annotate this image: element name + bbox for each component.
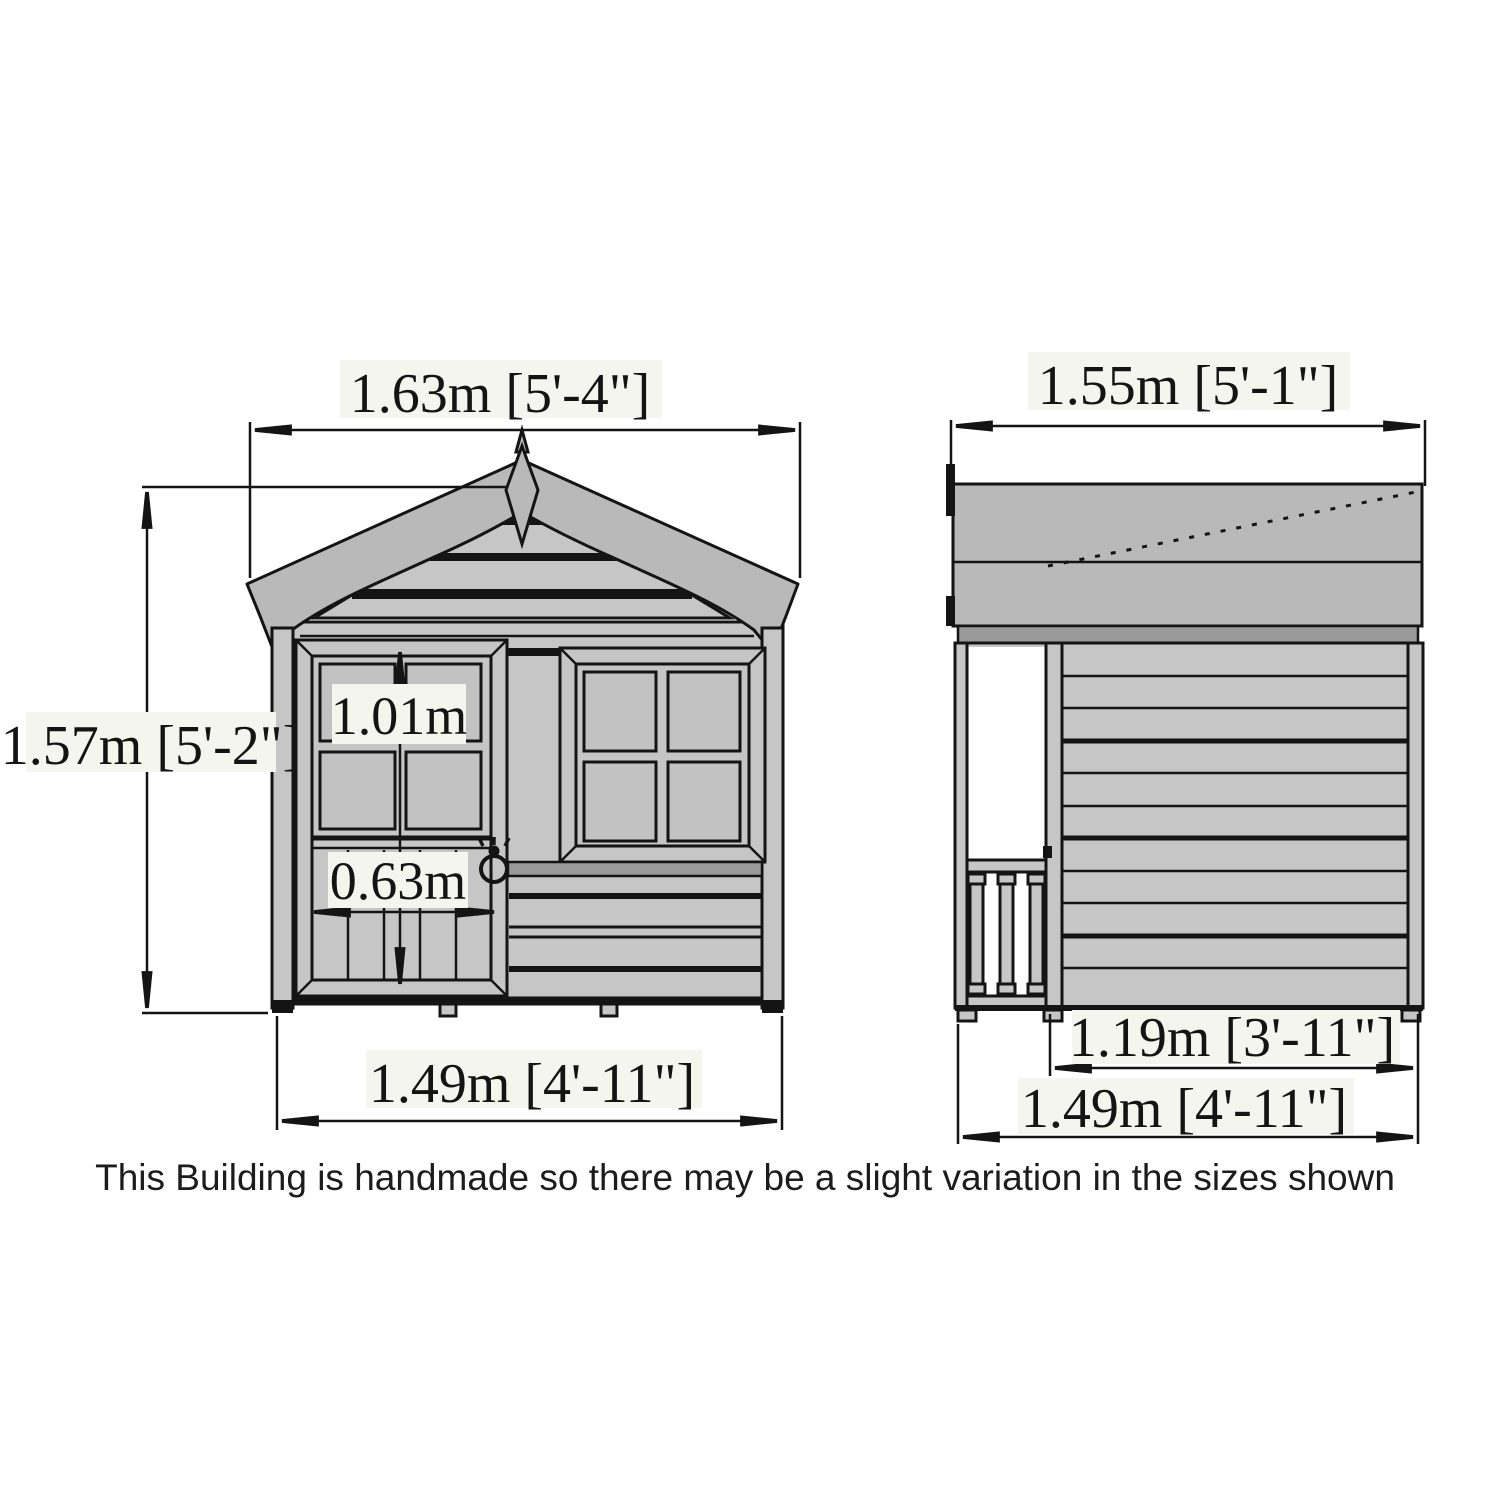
side-fascia-end-bottom [946, 596, 955, 626]
front-foot-2 [601, 1004, 617, 1016]
dim-door-height-label: 1.01m [331, 686, 468, 746]
side-eaves-band [958, 626, 1418, 643]
dim-door-width-label: 0.63m [330, 851, 467, 911]
front-post-left-foot [272, 1000, 293, 1013]
front-window [560, 648, 765, 862]
front-post-right-foot [762, 1000, 783, 1013]
side-door-frame [1046, 643, 1062, 1008]
side-foot-1 [958, 1010, 976, 1021]
dim-front-base-width-label: 1.49m [4'-11"] [369, 1053, 695, 1115]
dim-front-overall-height-label: 1.57m [5'-2"] [1, 715, 301, 777]
side-right-trim [1408, 643, 1423, 1008]
dim-side-wall-depth-label: 1.19m [3'-11"] [1069, 1007, 1395, 1069]
front-elevation: 1.63m [5'-4"] 1.57m [5'-2"] 1.01m 0.63m [1, 360, 800, 1130]
side-veranda [955, 643, 1062, 1008]
dim-front-overall-width-label: 1.63m [5'-4"] [350, 363, 650, 425]
side-roof [953, 484, 1422, 626]
front-foot-1 [440, 1004, 456, 1016]
dim-front-base-width: 1.49m [4'-11"] [277, 1016, 782, 1130]
drawing-svg: 1.63m [5'-4"] 1.57m [5'-2"] 1.01m 0.63m [0, 0, 1500, 1500]
dim-side-roof-depth-label: 1.55m [5'-1"] [1038, 355, 1338, 417]
side-foot-2 [1044, 1010, 1062, 1021]
playhouse-dimension-drawing: 1.63m [5'-4"] 1.57m [5'-2"] 1.01m 0.63m [0, 0, 1500, 1500]
side-corner-post [955, 643, 967, 1008]
front-post-left [272, 628, 293, 1008]
handmade-variation-note: This Building is handmade so there may b… [95, 1157, 1395, 1198]
dim-door-width: 0.63m [314, 851, 494, 912]
side-hinge-detail [1043, 846, 1052, 858]
side-balustrade [967, 860, 1046, 1008]
front-sill-band [508, 862, 762, 876]
dim-side-base-depth-label: 1.49m [4'-11"] [1021, 1078, 1347, 1140]
dim-side-roof-depth: 1.55m [5'-1"] [951, 352, 1425, 486]
side-elevation: 1.55m [5'-1"] 1.19m [3'-11"] 1.49m [4'-1… [946, 352, 1425, 1144]
